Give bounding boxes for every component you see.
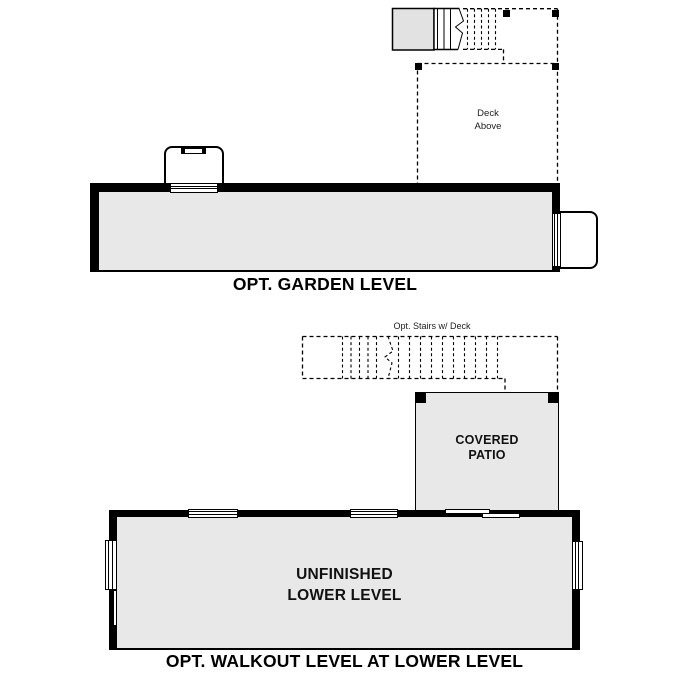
covered-patio-line1: COVERED (415, 433, 559, 448)
lower-wall-bottom (109, 648, 580, 650)
room-label-line1: UNFINISHED (117, 564, 572, 585)
lower-window-front-2 (350, 509, 398, 519)
deck-post (552, 63, 559, 70)
lower-window-left (105, 540, 118, 590)
garden-window-well-right (560, 211, 598, 269)
deck-above-line2: Above (418, 121, 558, 134)
walkout-level-title: OPT. WALKOUT LEVEL AT LOWER LEVEL (109, 652, 580, 671)
room-label-line2: LOWER LEVEL (117, 585, 572, 606)
deck-post (415, 63, 422, 70)
lower-window-right (572, 541, 583, 590)
garden-room-floor (99, 192, 552, 270)
floor-plan-sheet: Deck Above OPT. GARDEN LEVEL Opt. Stairs… (0, 0, 687, 687)
garden-level-title: OPT. GARDEN LEVEL (90, 275, 560, 294)
deck-post (503, 10, 510, 17)
lower-window-front-1 (188, 509, 238, 519)
opt-stairs-label: Opt. Stairs w/ Deck (332, 321, 532, 332)
covered-patio-label: COVERED PATIO (415, 433, 559, 463)
garden-window-front (170, 183, 218, 193)
deck-above-line1: Deck (418, 108, 558, 121)
covered-patio-line2: PATIO (415, 448, 559, 463)
stair-break-line (385, 337, 393, 379)
stair-break-line (456, 9, 464, 50)
garden-wall-top (90, 183, 560, 192)
deck-above-label: Deck Above (418, 108, 558, 133)
garden-wall-bottom (90, 270, 560, 272)
window-well-ladder (181, 148, 206, 154)
garden-window-right (552, 213, 562, 267)
unfinished-lower-level-label: UNFINISHED LOWER LEVEL (117, 564, 572, 606)
garden-wall-left (90, 183, 99, 272)
deck-post (552, 10, 559, 17)
stair-stoop (393, 9, 435, 51)
patio-slider-panel-2 (482, 513, 520, 518)
